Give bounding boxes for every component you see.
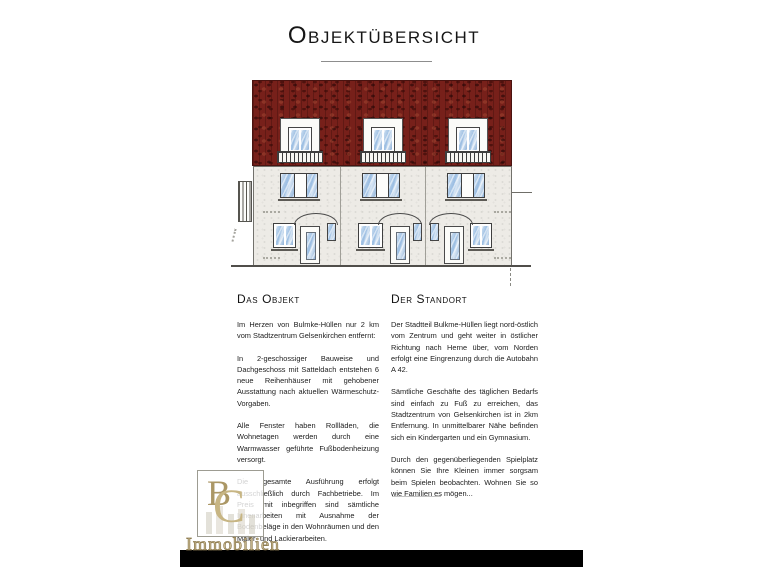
entrance-door bbox=[390, 226, 410, 264]
faint-rule bbox=[392, 496, 441, 497]
attic-window bbox=[371, 127, 395, 153]
balcony-railing bbox=[445, 151, 491, 163]
section-heading-objekt: Das Objekt bbox=[237, 292, 379, 306]
entrance-door bbox=[300, 226, 320, 264]
balcony-railing bbox=[360, 151, 406, 163]
logo-monogram-c: C bbox=[213, 479, 245, 534]
dimension-mark bbox=[494, 211, 511, 213]
ground-window bbox=[273, 223, 296, 248]
page-title: Objektübersicht bbox=[0, 22, 768, 50]
paragraph: Durch den gegenüberliegenden Spielplatz … bbox=[391, 454, 538, 499]
attic-window bbox=[456, 127, 480, 153]
paragraph: Der Stadtteil Bulkme-Hüllen liegt nord-ö… bbox=[391, 319, 538, 375]
window-sill bbox=[468, 249, 494, 251]
section-heading-standort: Der Standort bbox=[391, 292, 538, 306]
paragraph: Im Herzen von Bulmke-Hüllen nur 2 km vom… bbox=[237, 319, 379, 342]
door-glass bbox=[306, 232, 316, 260]
upper-window bbox=[280, 173, 318, 198]
window-sill bbox=[445, 199, 487, 201]
window-sill bbox=[360, 199, 402, 201]
section-der-standort: Der Standort Der Stadtteil Bulkme-Hüllen… bbox=[391, 292, 538, 510]
dimension-mark bbox=[494, 257, 511, 259]
paragraph: Sämtliche Geschäfte des täglichen Bedarf… bbox=[391, 386, 538, 442]
dormer-window bbox=[280, 118, 320, 155]
ground-window bbox=[470, 223, 492, 248]
dormer-window bbox=[448, 118, 488, 155]
ground-window bbox=[358, 223, 383, 248]
company-logo: B C bbox=[197, 470, 264, 537]
paragraph: In 2-geschossiger Bauweise und Dachgesch… bbox=[237, 353, 379, 409]
side-window bbox=[413, 223, 422, 241]
side-trellis bbox=[238, 181, 252, 222]
attic-window bbox=[288, 127, 312, 153]
exposé-page: Objektübersicht bbox=[0, 0, 768, 567]
logo-wordmark: Immobilien bbox=[186, 534, 280, 555]
window-sill bbox=[271, 249, 298, 251]
dashed-reference-line bbox=[510, 268, 512, 286]
dormer-window bbox=[363, 118, 403, 155]
house-divider-line bbox=[340, 167, 341, 265]
door-glass bbox=[396, 232, 406, 260]
side-window bbox=[430, 223, 439, 241]
window-sill bbox=[278, 199, 320, 201]
window-sill bbox=[356, 249, 385, 251]
dimension-mark bbox=[263, 211, 280, 213]
dimension-mark bbox=[263, 257, 280, 259]
ground-line bbox=[231, 265, 531, 267]
side-window bbox=[327, 223, 336, 241]
door-glass bbox=[450, 232, 460, 260]
title-underline bbox=[321, 61, 432, 62]
house-divider-line bbox=[425, 167, 426, 265]
upper-window bbox=[447, 173, 485, 198]
entrance-door bbox=[444, 226, 464, 264]
paragraph: Alle Fenster haben Rollläden, die Wohnet… bbox=[237, 420, 379, 465]
balcony-railing bbox=[277, 151, 323, 163]
upper-window bbox=[362, 173, 400, 198]
dimension-note bbox=[231, 229, 238, 243]
dimension-tick bbox=[512, 192, 532, 193]
